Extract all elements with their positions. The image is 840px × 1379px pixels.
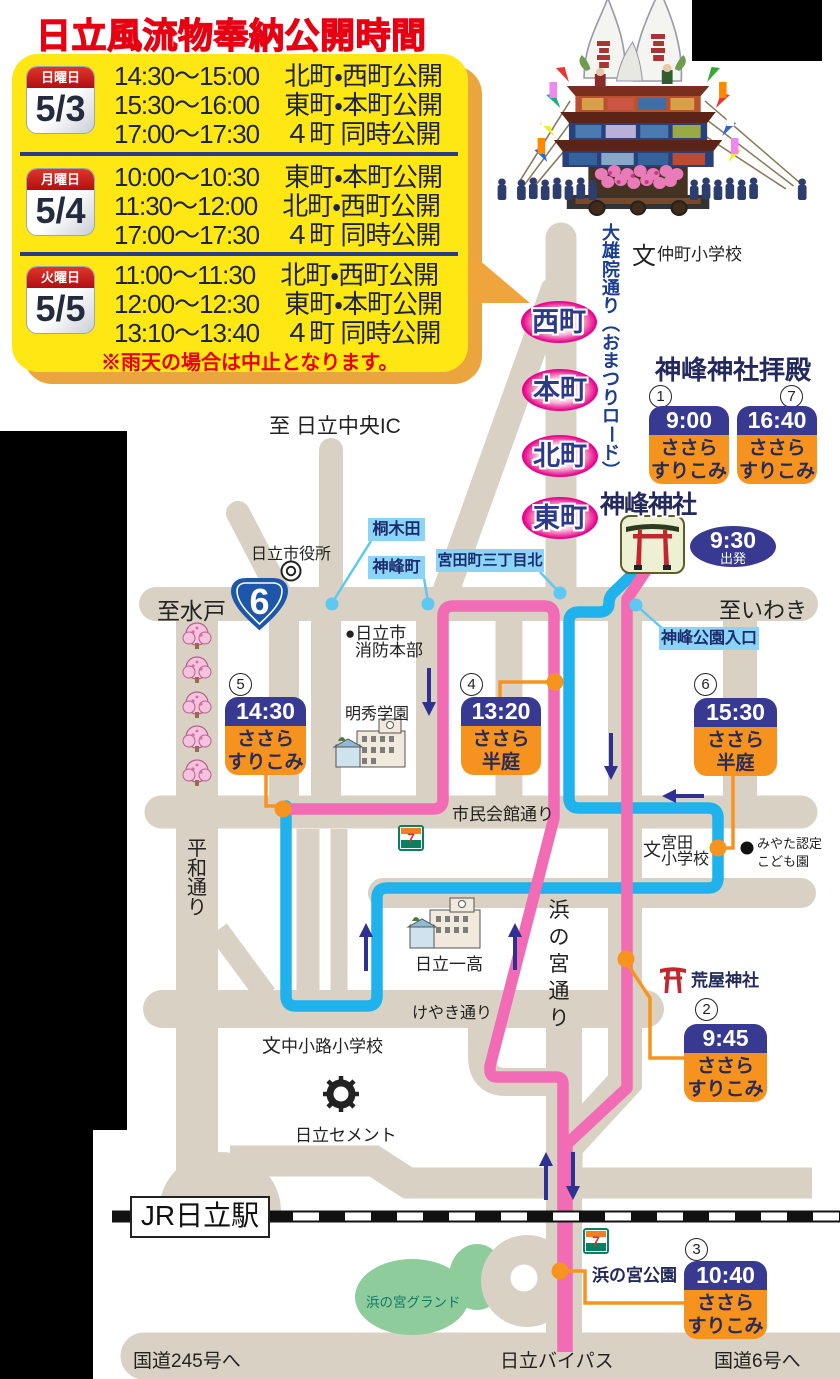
svg-text:7: 7	[592, 1233, 600, 1249]
svg-text:6: 6	[249, 581, 269, 622]
svg-text:7: 7	[407, 830, 415, 846]
